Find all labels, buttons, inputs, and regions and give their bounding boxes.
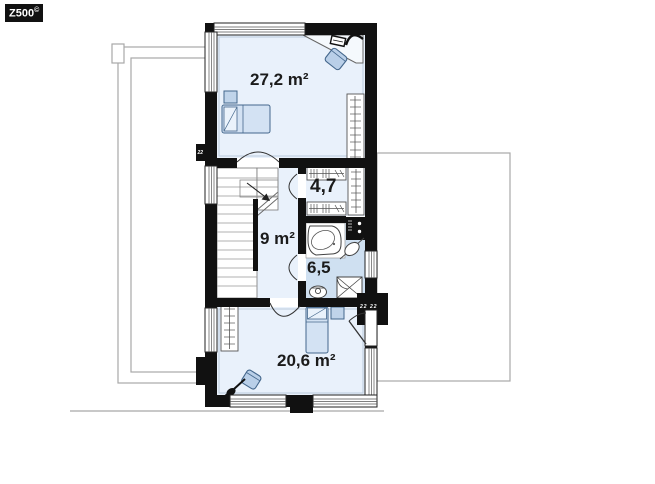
vent-label-left: 22 [197, 150, 204, 156]
outline-right [377, 153, 510, 381]
floor-plan-drawing: 22 22 22 [0, 0, 655, 484]
copyright-icon: © [34, 7, 39, 14]
window-right-bathroom [365, 251, 377, 278]
window-bottom-right [313, 395, 377, 407]
nightstand-lower-icon [331, 307, 344, 319]
wardrobe-right-icon [347, 94, 364, 162]
washer-icon [346, 217, 365, 240]
nightstand-icon [224, 91, 237, 103]
wardrobe-left-icon [221, 303, 238, 351]
stair-flight-main [217, 168, 257, 298]
wardrobe-right-47-icon [348, 167, 364, 215]
window-bottom-left [230, 395, 286, 407]
vent-label-right: 22 22 [359, 304, 378, 310]
window-left-lower [205, 308, 217, 352]
wall-stair-divider [253, 199, 258, 271]
outline-left-tab [112, 44, 124, 63]
window-top [214, 23, 305, 35]
wall-int-v2 [298, 198, 306, 254]
brand-name: Z500 [9, 8, 34, 20]
hanger-rail-bottom-icon [307, 202, 346, 215]
room-label-bedroom-lower: 20,6 m² [277, 351, 336, 371]
chimney-left-lower [196, 357, 208, 385]
room-label-wardrobe-room: 4,7 [310, 176, 336, 198]
wall-int-1b [279, 158, 365, 168]
toilet-icon [310, 286, 327, 298]
window-left-upper [205, 32, 217, 92]
window-left-stairs [205, 166, 217, 204]
wall-int-3b [300, 298, 365, 307]
wall-bottom-tab [290, 404, 313, 413]
wall-int-1a [217, 158, 237, 168]
floor-plan-canvas: 22 22 22 [0, 0, 655, 484]
balcony-door-opening [365, 310, 377, 346]
outline-left-outer [118, 47, 213, 383]
room-label-bathroom: 6,5 [307, 258, 331, 278]
brand-watermark: Z500© [5, 4, 43, 22]
stair-flight-upper [257, 168, 278, 210]
wall-int-v1 [298, 158, 306, 174]
outline-left-inner [131, 58, 213, 372]
wall-int-2 [306, 216, 346, 223]
room-label-bedroom-upper: 27,2 m² [250, 70, 309, 90]
bathtub-drain-icon [333, 243, 335, 245]
wall-int-3a [217, 298, 270, 307]
room-label-hallway: 9 m² [260, 229, 295, 249]
